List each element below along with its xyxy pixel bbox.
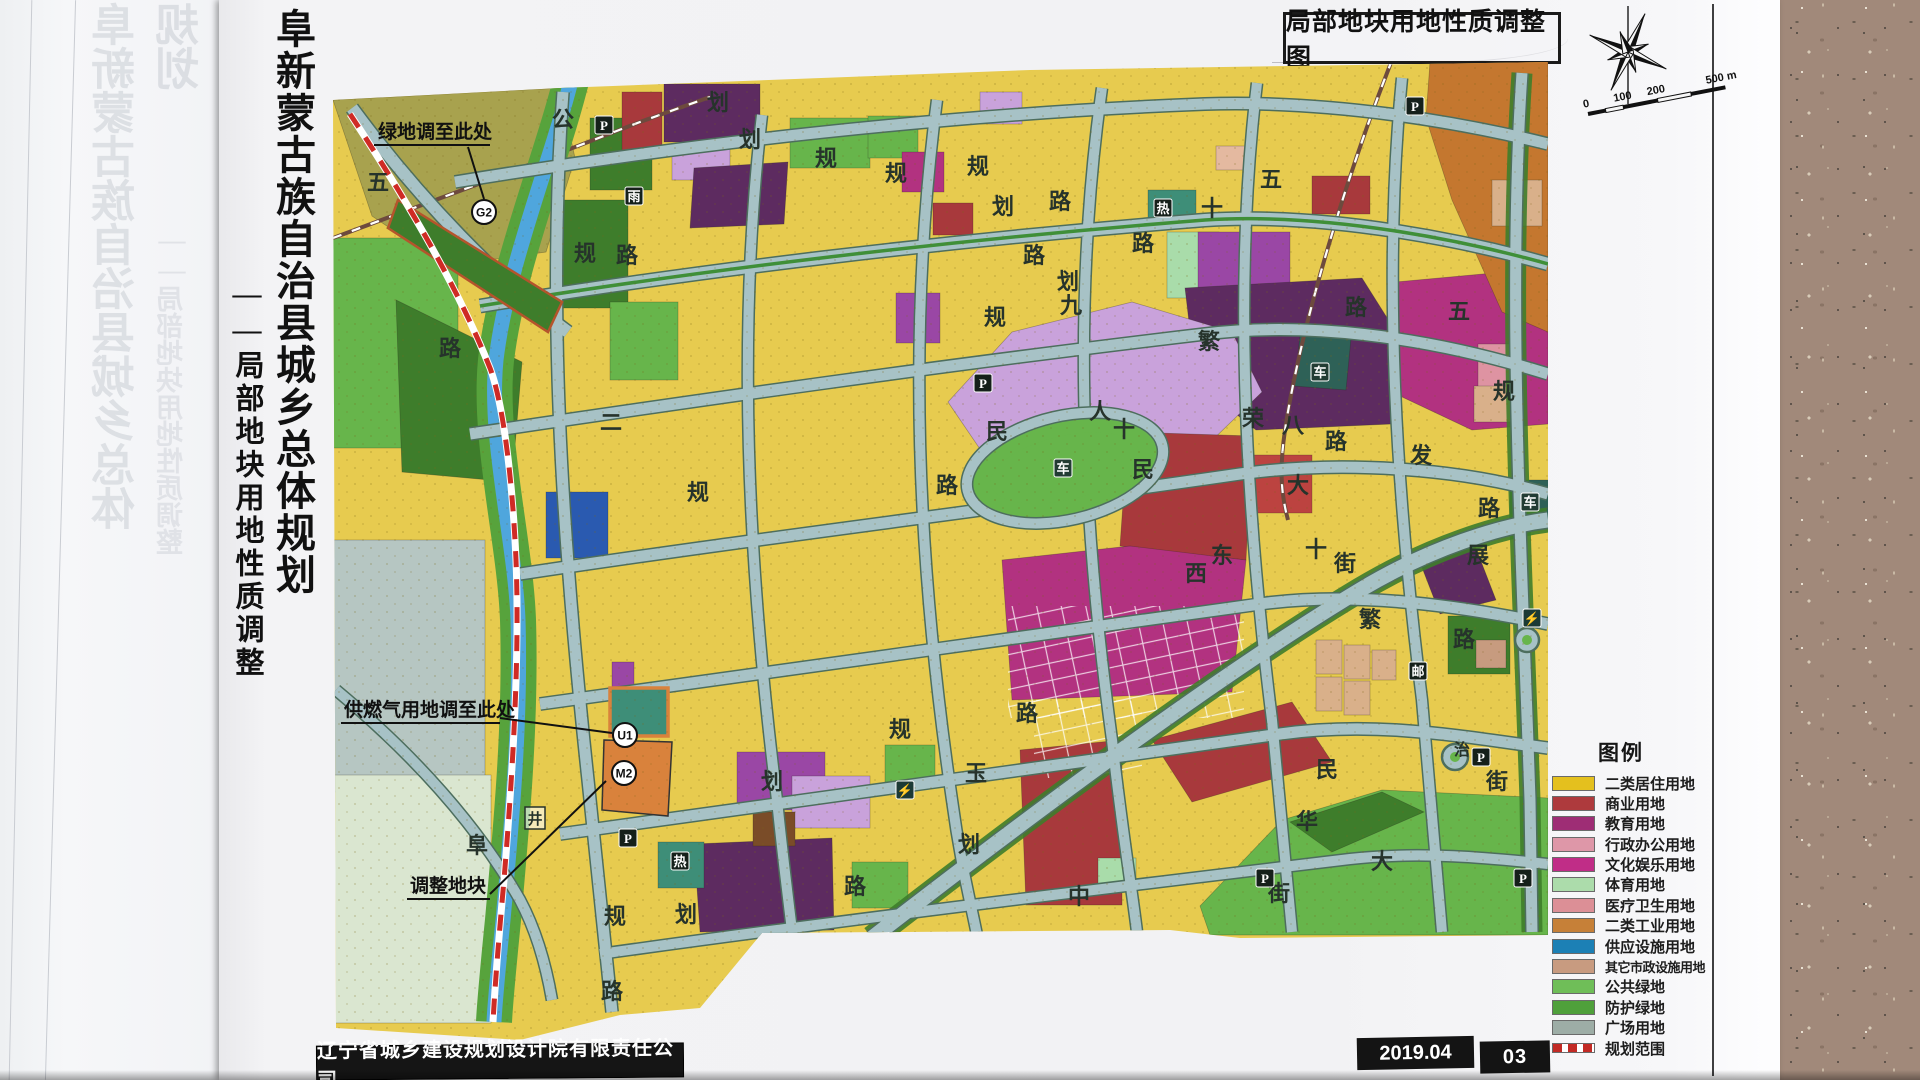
legend-item: 二类工业用地 [1552,919,1758,933]
road-label: 民 [986,419,1008,444]
road-label: 十 [1201,196,1223,221]
road-label: 八 [1282,413,1305,438]
road-label: 规 [984,305,1006,330]
parking-icon: P [624,831,632,846]
legend-swatch [1552,939,1595,954]
road-label: 治 [1454,740,1470,759]
road-label: 十 [1113,417,1135,442]
scale-bar: 0 100 200 500 m [1582,69,1739,117]
legend-label: 体育用地 [1605,874,1665,895]
parking-icon: P [1477,750,1485,765]
road-label: 十 [1305,537,1327,562]
road-label: 路 [1023,243,1046,268]
parcel-code-badge: U1 [617,729,633,743]
parcel-code-badge: M2 [616,767,633,781]
bus-icon: 车 [1056,461,1069,476]
legend-swatch [1552,796,1595,811]
legend-item: 供应设施用地 [1552,939,1758,953]
svg-text:100: 100 [1612,89,1632,104]
road-label: 发 [1409,443,1433,468]
road-label: 划 [675,902,697,927]
road-label: 五 [367,170,389,195]
road-label: 大 [1371,849,1393,874]
road-label: 规 [687,480,709,505]
road-label: 路 [1478,496,1501,521]
legend-label: 教育用地 [1605,813,1665,834]
road-label: 繁 [1198,329,1221,354]
road-label: 玉 [965,761,987,786]
svg-text:200: 200 [1646,83,1666,98]
parking-icon: P [979,376,987,391]
parking-icon: P [1261,871,1269,886]
legend-item: 规划范围 [1552,1041,1758,1055]
legend-swatch [1552,1020,1595,1035]
bus-icon: 车 [1313,365,1326,380]
parking-icon: P [600,118,608,133]
legend-item: 公共绿地 [1552,980,1758,994]
road-label: 公 [552,107,574,132]
legend-swatch [1552,979,1595,994]
legend-item: 商业用地 [1552,796,1758,810]
road-label: 路 [1016,701,1039,726]
legend: 图例 二类居住用地商业用地教育用地行政办公用地文化娱乐用地体育用地医疗卫生用地二… [1552,737,1758,1061]
legend-item: 防护绿地 [1552,1000,1758,1014]
svg-text:500 m: 500 m [1705,69,1738,87]
legend-swatch-boundary [1552,1043,1595,1053]
road-label: 大 [1287,473,1309,498]
road-label: 展 [1467,543,1489,568]
road-label: 东 [1211,543,1233,568]
legend-label: 供应设施用地 [1605,936,1695,957]
road-label: 华 [1296,809,1318,834]
legend-label: 其它市政设施用地 [1605,957,1705,976]
road-label: 规 [1493,379,1515,404]
power-icon: ⚡ [897,783,913,799]
road-label: 荣 [1241,406,1264,431]
road-label: 人 [1089,399,1111,424]
legend-label: 文化娱乐用地 [1605,854,1695,875]
utility-icon: 热 [673,854,686,869]
legend-swatch [1552,776,1595,791]
road-label: 规 [885,161,907,186]
legend-item: 其它市政设施用地 [1552,960,1758,974]
road-label: 路 [439,336,462,361]
road-label: 九 [1059,293,1082,318]
photo-shadow [0,1070,1920,1080]
road-label: 路 [1345,295,1368,320]
legend-label: 行政办公用地 [1605,834,1695,855]
legend-label: 规划范围 [1605,1038,1665,1059]
road-label: 民 [1132,457,1154,482]
road-label: 路 [844,874,867,899]
legend-label: 公共绿地 [1605,976,1665,997]
annotation-text: 供燃气用地调至此处 [343,698,516,721]
parcel-code-badge: G2 [476,206,492,220]
legend-swatch [1552,877,1595,892]
legend-item: 广场用地 [1552,1021,1758,1035]
legend-item: 体育用地 [1552,878,1758,892]
road-label: 路 [1453,627,1476,652]
parking-icon: P [1519,871,1527,886]
road-label: 规 [815,146,837,171]
print-texture [320,50,1560,1050]
legend-swatch [1552,816,1595,831]
road-label: 中 [1068,884,1090,909]
road-label: 路 [616,243,639,268]
road-label: 路 [1325,429,1348,454]
legend-item: 二类居住用地 [1552,776,1758,790]
legend-item: 行政办公用地 [1552,837,1758,851]
road-label: 路 [1132,231,1155,256]
annotation-text: 绿地调至此处 [378,120,493,143]
page-number-box: 03 [1480,1040,1551,1073]
photo-of-planning-map: 阜新蒙古族自治县城乡总体规划 ——局部地块用地性质调整 阜新蒙古族自治县城乡总体… [0,0,1920,1080]
road-label: 划 [1057,269,1079,294]
road-label: 规 [604,904,626,929]
boxed-label: 井 [527,810,542,828]
legend-label: 二类居住用地 [1605,773,1695,794]
legend-swatch [1552,959,1595,974]
road-label: 划 [707,90,729,115]
road-label: 街 [1333,551,1356,576]
road-label: 规 [967,154,989,179]
utility-icon: 雨 [627,189,640,204]
annotation-text: 调整地块 [410,874,487,897]
legend-swatch [1552,857,1595,872]
legend-label: 防护绿地 [1605,997,1665,1018]
legend-swatch [1552,837,1595,852]
legend-label: 二类工业用地 [1605,915,1695,936]
legend-swatch [1552,1000,1595,1015]
legend-item: 教育用地 [1552,817,1758,831]
road-label: 街 [1485,769,1508,794]
road-label: 规 [574,241,596,266]
legend-title: 图例 [1598,737,1758,767]
road-label: 路 [1049,189,1072,214]
legend-label: 广场用地 [1605,1017,1665,1038]
bus-icon: 车 [1523,495,1536,510]
road-label: 划 [958,832,980,857]
road-label: 划 [761,769,783,794]
svg-text:0: 0 [1582,98,1590,111]
date-box: 2019.04 [1357,1036,1475,1070]
road-label: 路 [936,473,959,498]
parking-icon: P [1411,99,1419,114]
road-label: 西 [1185,561,1207,586]
utility-icon: 热 [1156,201,1169,216]
road-label: 阜 [466,833,488,858]
power-icon: ⚡ [1524,611,1540,627]
legend-label: 医疗卫生用地 [1605,895,1695,916]
legend-item: 医疗卫生用地 [1552,898,1758,912]
road-label: 规 [889,717,911,742]
legend-swatch [1552,898,1595,913]
legend-label: 商业用地 [1605,793,1665,814]
road-label: 五 [1448,299,1470,324]
road-label: 二 [600,410,622,435]
utility-icon: 邮 [1411,664,1424,679]
road-label: 路 [601,979,624,1004]
road-label: 民 [1316,757,1338,782]
legend-item: 文化娱乐用地 [1552,858,1758,872]
road-label: 划 [992,194,1014,219]
road-label: 繁 [1359,607,1382,632]
legend-swatch [1552,918,1595,933]
road-label: 划 [739,127,761,152]
road-label: 五 [1260,167,1282,192]
